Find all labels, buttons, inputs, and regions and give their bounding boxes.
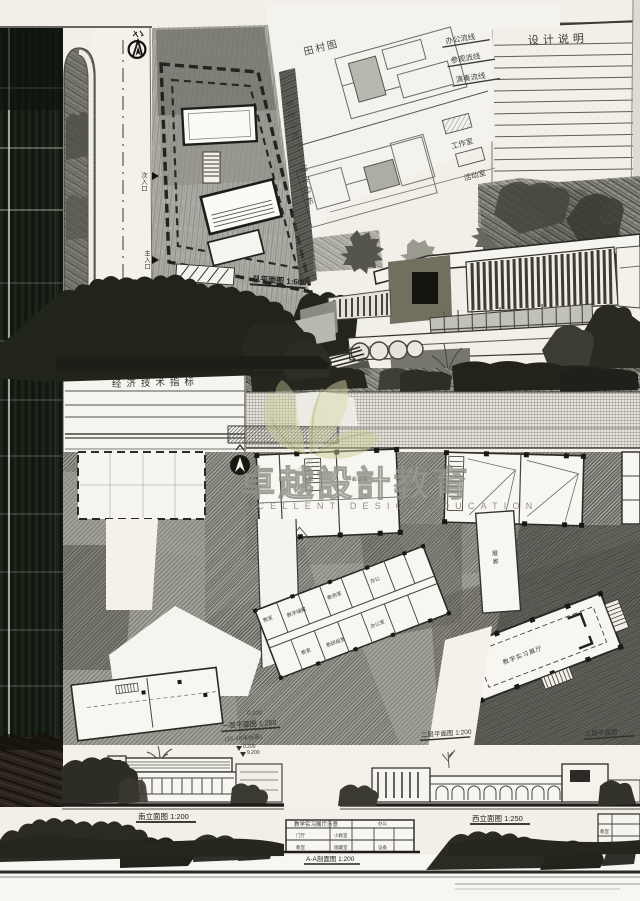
- svg-text:南立面图 1:200: 南立面图 1:200: [138, 811, 189, 821]
- svg-text:西立面图 1:250: 西立面图 1:250: [472, 813, 523, 823]
- svg-text:教学实习展厅示意: 教学实习展厅示意: [294, 820, 339, 828]
- svg-text:9.200: 9.200: [247, 750, 260, 756]
- svg-text:EXCELLENT DESIGN EDUCATION: EXCELLENT DESIGN EDUCATION: [233, 501, 538, 511]
- svg-text:办公: 办公: [378, 820, 387, 827]
- svg-text:门厅: 门厅: [296, 832, 305, 839]
- svg-text:卓越設計教育: 卓越設計教育: [240, 465, 471, 504]
- svg-text:0.200: 0.200: [247, 711, 263, 717]
- svg-text:设备: 设备: [378, 844, 387, 851]
- svg-text:小教室: 小教室: [334, 832, 348, 839]
- svg-text:0.200: 0.200: [243, 744, 256, 750]
- svg-text:教室: 教室: [296, 844, 305, 851]
- svg-text:教室: 教室: [600, 828, 609, 835]
- svg-text:储藏室: 储藏室: [334, 844, 348, 851]
- svg-text:A-A剖面图 1:200: A-A剖面图 1:200: [306, 854, 355, 863]
